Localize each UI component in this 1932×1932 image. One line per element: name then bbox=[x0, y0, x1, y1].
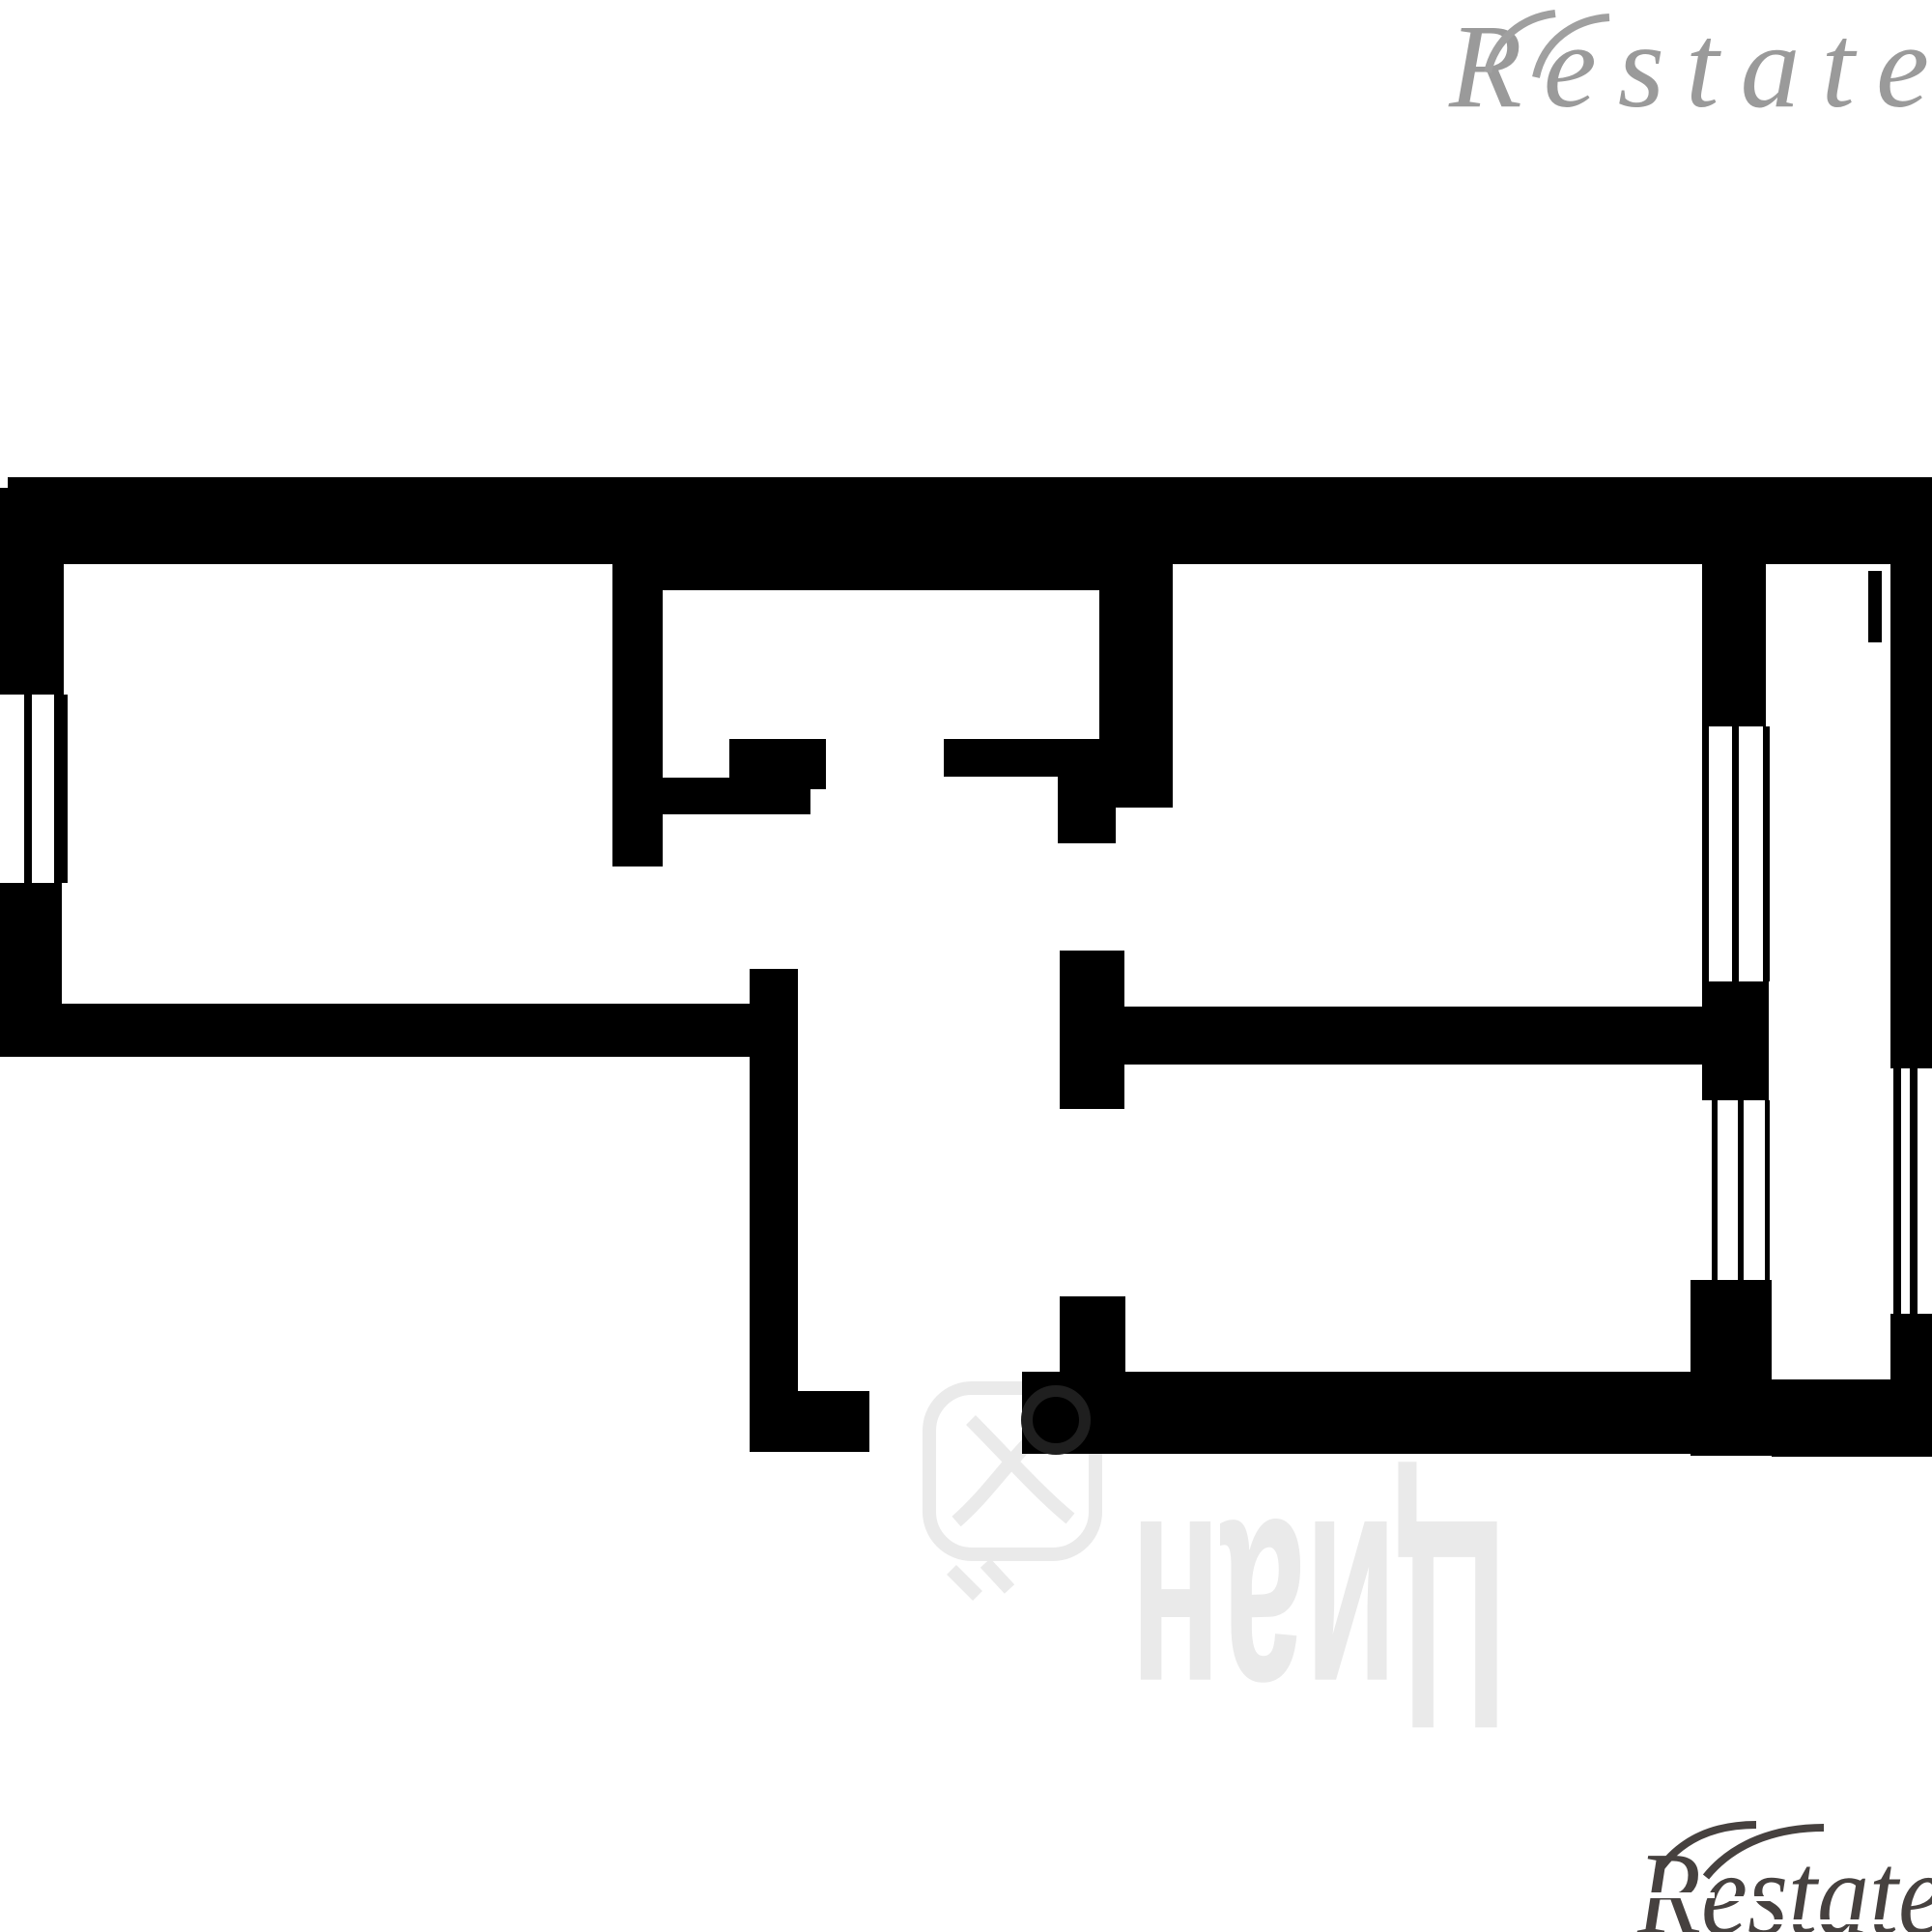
svg-text:Restate: Restate bbox=[1448, 0, 1932, 132]
svg-text:Циан: Циан bbox=[1130, 1458, 1507, 1793]
